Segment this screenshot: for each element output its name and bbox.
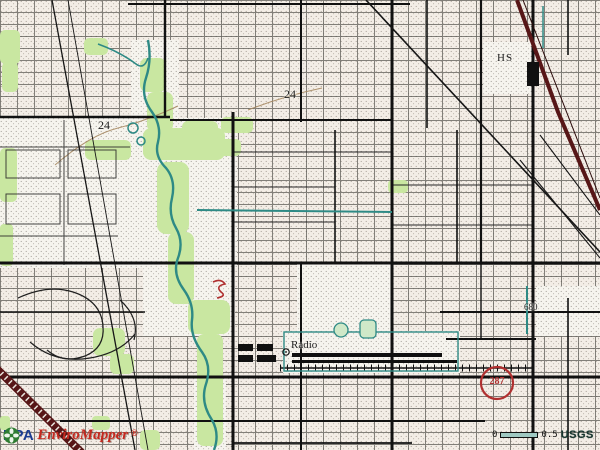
epa-flower-icon: [3, 427, 20, 444]
scale-start-label: 0: [492, 430, 497, 440]
scale-bar-segment: [500, 432, 538, 438]
scale-bar: 0 0.5 USGS: [492, 429, 594, 441]
enviromapper-logo: EPA EnviroMapper ®: [3, 427, 138, 444]
registered-trademark-symbol: ®: [131, 428, 138, 438]
enviromapper-wordmark: EnviroMapper: [37, 427, 128, 444]
map-canvas[interactable]: 24 24 HS Radio 680 287 EPA EnviroMapper …: [0, 0, 600, 450]
scale-end-label: 0.5: [541, 430, 557, 440]
usgs-attribution: USGS: [561, 429, 594, 441]
topo-map-image: [0, 0, 600, 450]
